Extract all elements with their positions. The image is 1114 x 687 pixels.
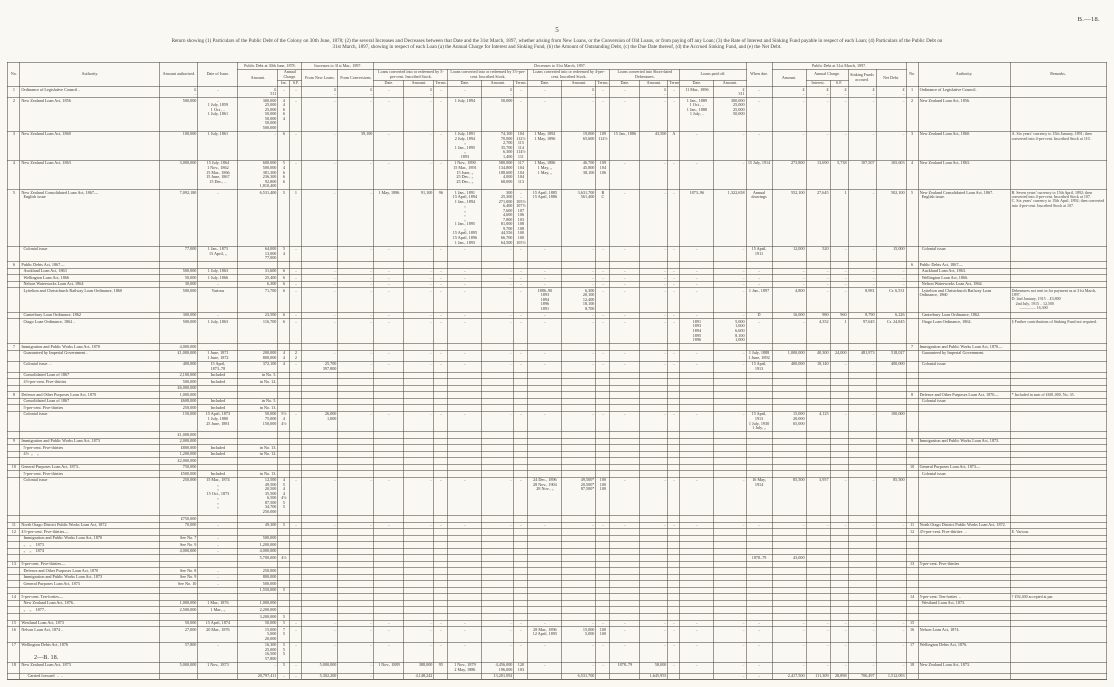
table-cell: B C (596, 190, 610, 246)
column-header: Amount. (772, 69, 806, 87)
table-cell: 13,690 (806, 160, 830, 189)
table-cell: 4 (906, 160, 918, 189)
table-cell: 1873–96 (680, 190, 714, 246)
table-cell: 7 5 (278, 627, 290, 643)
table-cell (906, 673, 918, 680)
table-cell: 5 5 5 (278, 642, 290, 662)
table-cell: 1 (830, 190, 848, 246)
table-cell: 117 104 104 104 113 (514, 160, 528, 189)
table-cell: 518,027 (876, 350, 906, 361)
table-cell: .. (668, 190, 680, 246)
table-cell: .. (514, 411, 528, 431)
table-cell: .. (374, 160, 404, 189)
table-cell: .. (610, 87, 640, 98)
table-cell: .. (404, 246, 434, 262)
table-cell: 165,603 (876, 160, 906, 189)
table-cell: 40,300 (806, 350, 830, 361)
table-row: Colonial issue150,00015 April, 1873 1 Ju… (8, 411, 1106, 431)
table-cell: 3,631,700 561,400 (562, 190, 596, 246)
table-cell: New Zealand Loan Act, 1873 (20, 662, 160, 673)
table-cell: .. (714, 627, 746, 643)
carried-forward-row: Carried forward .. ..20,797,411....5,302… (8, 673, 1106, 680)
table-cell: 1878–79 (610, 662, 640, 673)
table-cell: 500,000 (160, 98, 198, 132)
table-cell: .. (482, 361, 514, 372)
table-cell: .. (596, 642, 610, 662)
table-cell: .. (772, 319, 806, 344)
table-cell: .. (640, 98, 668, 132)
table-cell (1010, 477, 1106, 515)
table-cell: 6 (278, 319, 290, 344)
table-cell: 15 April, 1913 1 July, 1930 1 July, „ (746, 411, 772, 431)
table-cell: .. (680, 642, 714, 662)
table-cell: .. (596, 662, 610, 673)
table-cell: .. (434, 98, 448, 132)
table-cell: Cr. 6,531 (876, 288, 906, 313)
table-cell: .. (610, 288, 640, 313)
table-cell: .. (668, 411, 680, 431)
table-cell: 1 (8, 87, 20, 98)
table-cell: .. (714, 673, 746, 680)
table-cell: Various (198, 288, 238, 313)
table-cell (8, 288, 20, 313)
table-cell: 109 104 106 (596, 160, 610, 189)
table-cell: .. (680, 246, 714, 262)
column-header: No. (906, 63, 918, 87)
table-cell: 49,500* 20,500* 87,500* (562, 477, 596, 515)
table-cell: .. (448, 350, 482, 361)
column-header: Annual Charge. (278, 69, 302, 80)
table-cell: .. (290, 246, 302, 262)
table-cell: 24 Dec., 1896 28 Nov., 1904 28 Nov., „ (528, 477, 562, 515)
table-cell: 107,507 (848, 160, 876, 189)
table-cell: 5,000,000 (302, 662, 338, 673)
table-cell: 12,500 49,500 20,500 35,500 6,500 87,500… (238, 477, 278, 515)
table-cell: 15 April, 1911 (746, 246, 772, 262)
table-cell: .. (680, 131, 714, 160)
table-cell: Ordinance of Legislative Council. (918, 87, 1010, 98)
table-cell: .. (434, 642, 448, 662)
table-cell: .. (562, 361, 596, 372)
table-cell: 1 May, 1886 1 May, „ 1 May, „ (528, 160, 562, 189)
table-cell: .. (830, 411, 848, 431)
table-cell: .. (610, 627, 640, 643)
table-cell: .. (562, 411, 596, 431)
table-cell: 77,000 (160, 246, 198, 262)
table-cell: 5,738 (830, 160, 848, 189)
table-cell: .. (806, 627, 830, 643)
table-cell: .. (434, 361, 448, 372)
table-cell: .. (290, 87, 302, 98)
table-cell: .. (640, 288, 668, 313)
table-cell: 4 5 4 4 4½ 5 5 (278, 477, 290, 515)
table-cell: .. (374, 288, 404, 313)
column-header: Net Debt. (876, 69, 906, 87)
table-cell: New Zealand Loan Act, 1863. (918, 160, 1010, 189)
table-cell: Otago Loan Ordinance, 1862 .. (20, 319, 160, 344)
table-cell: .. (338, 411, 374, 431)
table-cell: .. (528, 361, 562, 372)
table-cell: 18 (8, 662, 20, 673)
column-header: Sinking Funds accrued. (848, 69, 876, 87)
table-cell: 50,000 (482, 98, 514, 132)
table-cell: .. (374, 627, 404, 643)
table-cell: § Further contributions of Sinking Fund … (1010, 319, 1106, 344)
table-cell: 100,000 (160, 131, 198, 160)
table-cell: 27,645 (806, 190, 830, 246)
table-cell: .. (680, 361, 714, 372)
table-cell: .. (338, 361, 374, 372)
table-cell: .. (434, 350, 448, 361)
table-cell: Lyttelton and Christchurch Railway Loan … (20, 288, 160, 313)
table-cell: 1 (906, 87, 918, 98)
table-cell: 43,500 (640, 131, 668, 160)
table-cell: Nelson Loan Act, 1874. (918, 627, 1010, 643)
table-cell: 2 (8, 98, 20, 132)
table-cell: .. (830, 627, 848, 643)
page-number: 5 (0, 26, 1114, 34)
table-cell: New Zealand Loan Act, 1856 (20, 98, 160, 132)
table-cell: £ .. (830, 87, 848, 98)
table-cell: £1,000,000 (160, 350, 198, 361)
table-cell: £ .. (482, 87, 514, 98)
table-cell: .. (448, 361, 482, 372)
table-cell: 250,000 (160, 477, 198, 515)
table-cell: .. (806, 98, 830, 132)
table-cell: .. (434, 160, 448, 189)
table-cell: .. (830, 361, 848, 372)
table-cell: .. 1 July, 1859 1 Oct., .. 1 July, 1861 (198, 98, 238, 132)
table-cell: 4,352 (806, 319, 830, 344)
table-cell: .. (404, 411, 434, 431)
table-cell: 111,309 (806, 673, 830, 680)
table-cell: .. (374, 131, 404, 160)
table-cell: .. (830, 131, 848, 160)
table-cell: 64,000 13,000 77,000 (238, 246, 278, 262)
table-cell: .. (714, 288, 746, 313)
table-cell: .. (668, 87, 680, 98)
table-cell: .. (404, 288, 434, 313)
document-page: 5 B.—18. Return showing (1) Particulars … (0, 0, 1114, 687)
table-cell: .. (514, 361, 528, 372)
table-cell: .. (714, 350, 746, 361)
table-cell: .. (434, 87, 448, 98)
table-cell: 273,800 (772, 160, 806, 189)
table-row: 16Nelson Loan Act, 1874 ..27,00020 Mar.,… (8, 627, 1106, 643)
table-row: 1Ordinance of Legislative Council ..£ ..… (8, 87, 1106, 98)
table-cell: New Zealand Loan Act, 1860. (918, 131, 1010, 160)
table-cell: 2 2 (290, 350, 302, 361)
table-cell: .. (482, 411, 514, 431)
table-cell: .. (610, 361, 640, 372)
table-cell: .. (302, 246, 338, 262)
table-cell: New Zealand Loan Act, 1863 (20, 160, 160, 189)
table-cell: .. (714, 642, 746, 662)
table-cell: 706,497 (848, 673, 876, 680)
table-row: Otago Loan Ordinance, 1862 ..500,0001 Ju… (8, 319, 1106, 344)
column-header: When due. (746, 63, 772, 87)
table-cell: .. (404, 642, 434, 662)
table-cell: .. (448, 477, 482, 515)
table-cell: .. (610, 160, 640, 189)
table-cell: 300,000 25,000 25,000 50,000 (714, 98, 746, 132)
table-cell: .. (434, 477, 448, 515)
table-cell: .. (448, 319, 482, 344)
table-cell: 1,645,955 (640, 673, 668, 680)
table-cell: .. (806, 662, 830, 673)
table-cell: .. (514, 246, 528, 262)
table-cell: .. (528, 87, 562, 98)
column-header: Amount. (238, 69, 278, 87)
table-cell: .. (278, 87, 290, 98)
table-cell: .. (680, 477, 714, 515)
table-cell: 50,000 75,000 150,000 (238, 411, 278, 431)
table-cell: .. (278, 673, 290, 680)
table-cell (1010, 98, 1106, 132)
table-cell: .. (338, 190, 374, 246)
table-cell (1010, 673, 1106, 680)
table-cell: .. (680, 160, 714, 189)
table-cell: .. (338, 662, 374, 673)
table-cell: .. (610, 642, 640, 662)
table-cell: .. (848, 131, 876, 160)
table-cell: 85,500 (772, 477, 806, 515)
table-cell: .. (746, 642, 772, 662)
table-cell: .. (290, 361, 302, 372)
table-cell: .. (404, 627, 434, 643)
table-cell: .. (302, 319, 338, 344)
table-cell: 26,000 1,000 (302, 411, 338, 431)
table-cell: 1 (290, 190, 302, 246)
table-cell: .. (806, 288, 830, 313)
table-cell: 15,000 (876, 246, 906, 262)
table-cell: 16 (8, 627, 20, 643)
table-cell: .. (596, 350, 610, 361)
table-cell: .. (714, 411, 746, 431)
table-cell: .. (848, 246, 876, 262)
table-cell (8, 246, 20, 262)
table-cell: .. (404, 477, 434, 515)
table-cell: .. (640, 477, 668, 515)
table-cell: New Zealand Consolidated Loan Act, 1867.… (918, 190, 1010, 246)
table-cell: .. (562, 246, 596, 262)
table-cell: .. (528, 642, 562, 662)
table-cell: 481,973 (848, 350, 876, 361)
table-cell: 100 100 (596, 627, 610, 643)
table-cell: .. (404, 350, 434, 361)
table-row: Colonial issue77,0001 Jan., 1873 15 Apri… (8, 246, 1106, 262)
column-header: From New Loans. (302, 69, 338, 87)
table-cell: 1891 1893 1894 1895 1896 (680, 319, 714, 344)
table-cell: .. (772, 662, 806, 673)
table-cell: .. (302, 350, 338, 361)
table-cell: 502,100 (876, 190, 906, 246)
table-cell: £ .. (806, 87, 830, 98)
table-cell: 400,000 (772, 361, 806, 372)
table-cell: .. (290, 131, 302, 160)
table-cell: 1 July, 1861 (198, 131, 238, 160)
table-cell: .. (514, 319, 528, 344)
table-cell: .. (772, 131, 806, 160)
table-cell: .. (746, 662, 772, 673)
table-cell: £ 511 (238, 87, 278, 98)
table-row: 3New Zealand Loan Act, 1860100,0001 July… (8, 131, 1106, 160)
table-cell: .. (374, 642, 404, 662)
table-cell: £ .. (640, 87, 668, 98)
table-cell: .. (596, 411, 610, 431)
column-header: No. (8, 63, 20, 87)
table-cell: Guaranteed by Imperial Government .. (20, 350, 160, 361)
table-cell: .. (238, 662, 278, 673)
table-cell: 4 (8, 160, 20, 189)
table-cell: .. (562, 662, 596, 673)
table-cell: £ .. (160, 87, 198, 98)
table-cell: .. (404, 98, 434, 132)
table-cell: .. (772, 98, 806, 132)
table-cell: .. (482, 627, 514, 643)
table-cell: .. (448, 411, 482, 431)
table-cell: 1 Nov., 1889 (374, 662, 404, 673)
table-cell: £ .. (848, 87, 876, 98)
table-cell: .. (668, 361, 680, 372)
table-cell: 11 Mar., 1896 (680, 87, 714, 98)
table-cell: .. (668, 288, 680, 313)
table-cell: £ .. (562, 87, 596, 98)
table-cell: Lyttelton and Christchurch Railway Loan … (918, 288, 1010, 313)
table-cell: 4 4 6 6 4 (278, 98, 290, 132)
table-cell: .. (830, 288, 848, 313)
table-cell: .. (746, 87, 772, 98)
table-cell: .. (714, 246, 746, 262)
table-cell: 15 July, 1864 1 Nov., 1862 15 Mar., 1866… (198, 160, 238, 189)
table-cell: .. (528, 98, 562, 132)
table-cell (1010, 642, 1106, 662)
table-cell: 388,000 (404, 662, 434, 673)
table-cell: .. (514, 350, 528, 361)
table-cell: 15 Jan., 1886 (610, 131, 640, 160)
table-cell: .. (404, 319, 434, 344)
table-cell: .. (848, 190, 876, 246)
table-cell: 16 May, 1914 (746, 477, 772, 515)
table-cell: .. (374, 350, 404, 361)
table-cell: .. (338, 477, 374, 515)
table-cell: .. (830, 642, 848, 662)
table-cell: .. (338, 288, 374, 313)
table-cell: .. (596, 246, 610, 262)
table-cell: 2,417,500 (772, 673, 806, 680)
table-cell: 1 Jan., 1891 15 April, 1894 1 Jan., 1894… (448, 190, 482, 246)
table-cell: 4,456,000 196,000 (482, 662, 514, 673)
table-cell: Colonial issue .. (20, 361, 160, 372)
table-row: 5New Zealand Consolidated Loan Act, 1867… (8, 190, 1106, 246)
table-cell: .. (848, 642, 876, 662)
table-cell: 91,100 (404, 190, 434, 246)
table-cell (1010, 361, 1106, 372)
table-cell: 19,000 65,600 (562, 131, 596, 160)
table-cell: .. (434, 411, 448, 431)
table-cell: .. (596, 98, 610, 132)
table-cell: .. (448, 246, 482, 262)
table-cell: .. (528, 350, 562, 361)
table-cell: .. (680, 411, 714, 431)
table-cell: 5 4 (278, 246, 290, 262)
table-cell (448, 673, 482, 680)
table-cell: .. (434, 319, 448, 344)
column-header: Loans converted into or redeemed by 3½-p… (448, 69, 528, 80)
table-cell: 17 (8, 642, 20, 662)
table-cell: 3,957 (806, 477, 830, 515)
table-cell: 5½ 4 4½ (278, 411, 290, 431)
table-cell: New Zealand Loan Act, 1856. (918, 98, 1010, 132)
table-cell: 200,000 800,000 (238, 350, 278, 361)
table-cell: .. (290, 411, 302, 431)
table-cell: .. (596, 361, 610, 372)
table-cell: .. (848, 361, 876, 372)
table-cell: .. (668, 160, 680, 189)
table-cell: .. (640, 190, 668, 246)
table-cell: 4,125 (806, 411, 830, 431)
table-cell (906, 319, 918, 344)
table-cell: .. (528, 411, 562, 431)
table-cell: 15 Mar., 1874 „ „ 15 Oct., 1873 „ „ „ (198, 477, 238, 515)
table-cell: 1 Nov., 1890 15 Mar., 1891 15 June, „ 25… (448, 160, 482, 189)
table-cell (8, 361, 20, 372)
table-cell: 104 112½ 115 114 114½ 111 (514, 131, 528, 160)
table-cell: .. (374, 319, 404, 344)
table-cell: .. (876, 98, 906, 132)
table-cell: .. (514, 627, 528, 643)
table-cell: .. (596, 87, 610, 98)
table-cell: 1 (830, 319, 848, 344)
table-cell: .. (290, 642, 302, 662)
table-cell: 3 (8, 131, 20, 160)
table-cell: 20,797,411 (238, 673, 278, 680)
table-cell: .. (746, 98, 772, 132)
column-header: Date of Issue. (198, 63, 238, 87)
table-cell: .. (290, 160, 302, 189)
table-cell: .. (746, 627, 772, 643)
table-cell: 13,201,092 (482, 673, 514, 680)
table-cell: 46,700 45,800 38,100 (562, 160, 596, 189)
table-cell: .. (302, 642, 338, 662)
table-cell: .. (434, 131, 448, 160)
column-header: Authority. (20, 63, 160, 87)
table-cell: 500,000 (160, 288, 198, 313)
table-cell: .. (876, 642, 906, 662)
table-cell: .. (746, 673, 772, 680)
table-cell: 6,531,400 (238, 190, 278, 246)
table-cell (8, 477, 20, 515)
table-cell: .. (746, 319, 772, 344)
table-cell: 71,700 (238, 288, 278, 313)
table-cell: 58,000 (640, 662, 668, 673)
table-cell (1010, 246, 1106, 262)
table-cell: .. (668, 627, 680, 643)
table-cell: 15,000 5,000 20,000 (238, 627, 278, 643)
table-cell (198, 673, 238, 680)
table-cell: .. (596, 288, 610, 313)
table-cell: .. (772, 642, 806, 662)
table-cell: 1 Jan., 1873 15 April, „ (198, 246, 238, 262)
column-header: Authority. (918, 63, 1010, 87)
table-cell (374, 673, 404, 680)
table-cell: 1,512,093 (876, 673, 906, 680)
table-cell: .. (374, 98, 404, 132)
table-row: Colonial issue250,00015 Mar., 1874 „ „ 1… (8, 477, 1106, 515)
bottom-signature: 2—B. 18. (34, 654, 58, 661)
table-cell: £ .. (772, 87, 806, 98)
table-cell: 4 4 (278, 350, 290, 361)
